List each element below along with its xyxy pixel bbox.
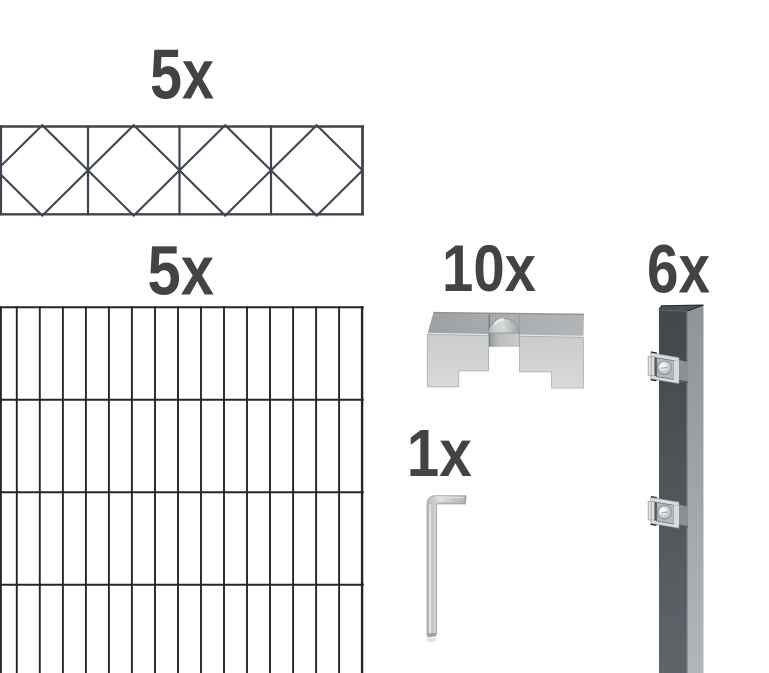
svg-text:6x: 6x — [647, 231, 710, 307]
svg-text:1x: 1x — [407, 417, 472, 491]
svg-text:5x: 5x — [148, 232, 215, 310]
svg-text:10x: 10x — [442, 232, 536, 306]
svg-text:5x: 5x — [150, 35, 214, 114]
